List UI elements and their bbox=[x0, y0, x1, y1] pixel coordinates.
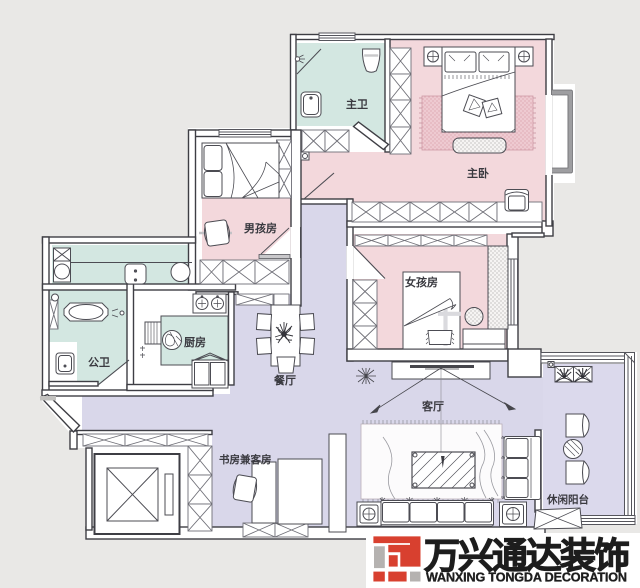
svg-text:WANXING TONGDA DECORATION: WANXING TONGDA DECORATION bbox=[426, 571, 627, 585]
svg-text:客厅: 客厅 bbox=[421, 399, 444, 413]
svg-text:主卧: 主卧 bbox=[467, 166, 489, 180]
svg-text:公卫: 公卫 bbox=[88, 356, 110, 369]
svg-text:厨房: 厨房 bbox=[184, 335, 206, 349]
svg-text:男孩房: 男孩房 bbox=[244, 221, 277, 235]
svg-text:书房兼客房: 书房兼客房 bbox=[219, 453, 272, 466]
svg-text:休闲阳台: 休闲阳台 bbox=[546, 493, 589, 506]
svg-text:女孩房: 女孩房 bbox=[405, 275, 438, 289]
svg-text:餐厅: 餐厅 bbox=[273, 373, 296, 387]
svg-text:主卫: 主卫 bbox=[346, 97, 368, 111]
